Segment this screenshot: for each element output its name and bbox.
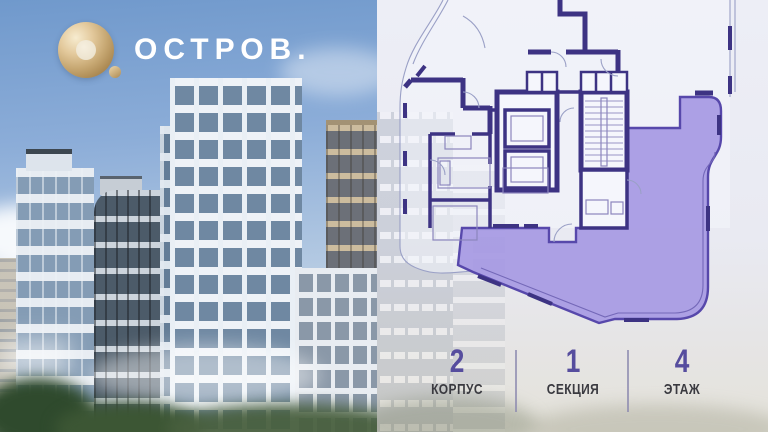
building-number: 2 xyxy=(408,343,506,380)
building-label: КОРПУС xyxy=(409,381,505,398)
floor-label: ЭТАЖ xyxy=(634,381,730,398)
info-section: 1 СЕКЦИЯ xyxy=(513,343,633,398)
flyer: ОСТРОВ. xyxy=(0,0,768,432)
stairwell xyxy=(581,72,627,228)
gold-ring-icon xyxy=(58,22,114,78)
floor-number: 4 xyxy=(633,343,731,380)
section-label: СЕКЦИЯ xyxy=(525,381,621,398)
gold-dot-icon xyxy=(109,66,121,78)
tower-left-penthouse xyxy=(26,149,72,171)
info-building: 2 КОРПУС xyxy=(397,343,517,398)
haze xyxy=(90,345,320,405)
info-floor: 4 ЭТАЖ xyxy=(622,343,742,398)
floorplan-panel: 2 КОРПУС 1 СЕКЦИЯ 4 ЭТАЖ xyxy=(377,0,768,432)
building-photo: ОСТРОВ. xyxy=(0,0,377,432)
section-number: 1 xyxy=(524,343,622,380)
horizon-haze xyxy=(0,338,70,380)
brand-name: ОСТРОВ. xyxy=(134,33,312,67)
brand-logo: ОСТРОВ. xyxy=(58,22,312,78)
floor-plan xyxy=(377,0,768,345)
info-row: 2 КОРПУС 1 СЕКЦИЯ 4 ЭТАЖ xyxy=(377,343,768,425)
